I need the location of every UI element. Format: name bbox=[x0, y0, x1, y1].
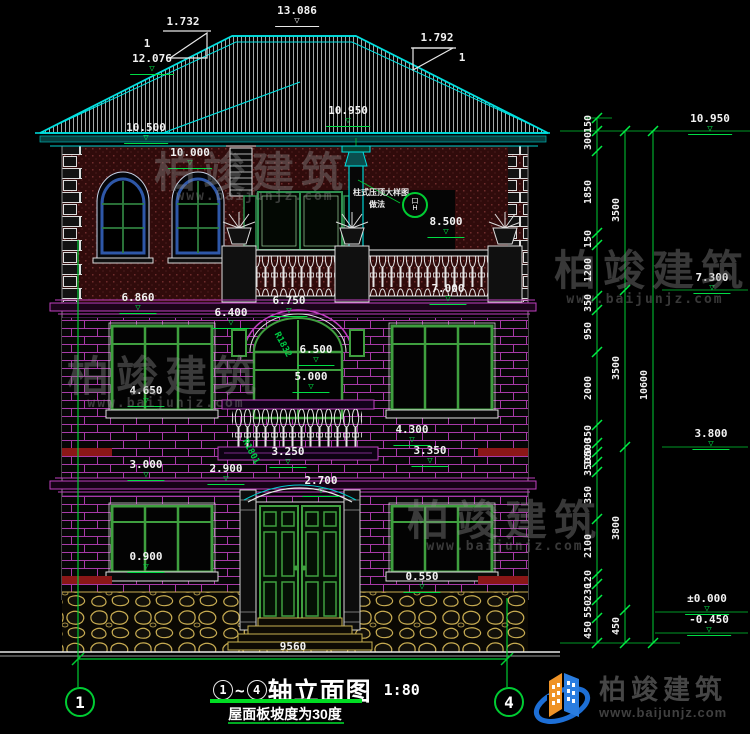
bubble-bottom-label: H bbox=[412, 205, 417, 212]
chimney bbox=[226, 146, 256, 196]
red-beam-2f-right bbox=[478, 448, 528, 456]
axis-circle-end: 4 bbox=[247, 680, 267, 700]
balcony-2f bbox=[218, 400, 378, 460]
corner-quoins-left bbox=[62, 146, 82, 302]
detail-reference-bubble: 口 H bbox=[402, 192, 428, 218]
title-underline bbox=[210, 699, 362, 703]
company-logo: 柏竣建筑 www.baijunjz.com bbox=[531, 663, 727, 733]
building-elevation-linework bbox=[0, 0, 750, 734]
red-beam-2f-left bbox=[62, 448, 112, 456]
cornice-band-upper bbox=[50, 300, 536, 318]
entrance-door bbox=[228, 485, 372, 650]
logo-url: www.baijunjz.com bbox=[599, 705, 727, 720]
axis-bubble-4: 4 bbox=[494, 687, 524, 717]
window-1f-left bbox=[106, 503, 218, 581]
red-beam-1f-right bbox=[478, 576, 528, 584]
subtitle-underline bbox=[228, 722, 344, 724]
balcony-doors bbox=[244, 192, 356, 250]
red-beam-1f-left bbox=[62, 576, 112, 584]
title-scale: 1:80 bbox=[384, 681, 420, 699]
arched-window-left bbox=[93, 172, 153, 263]
logo-company-name: 柏竣建筑 bbox=[599, 676, 727, 706]
window-1f-right bbox=[386, 503, 498, 581]
subtitle-text: 屋面板坡度为30度 bbox=[228, 704, 342, 724]
cad-elevation-drawing: 1.732113.0861.792112.07610.95010.50010.0… bbox=[0, 0, 750, 734]
bubble-top-label: 口 bbox=[412, 198, 419, 205]
axis-circle-start: 1 bbox=[213, 680, 233, 700]
axis-bubble-1: 1 bbox=[65, 687, 95, 717]
window-2f-right bbox=[386, 323, 498, 418]
cornice-band-lower bbox=[50, 478, 536, 496]
arched-window-right bbox=[168, 172, 228, 263]
window-2f-left bbox=[106, 323, 218, 418]
right-dimension-chains bbox=[560, 113, 750, 648]
tilde: ~ bbox=[235, 681, 245, 700]
balcony-balustrade bbox=[226, 250, 522, 303]
logo-building-icon bbox=[531, 663, 593, 733]
